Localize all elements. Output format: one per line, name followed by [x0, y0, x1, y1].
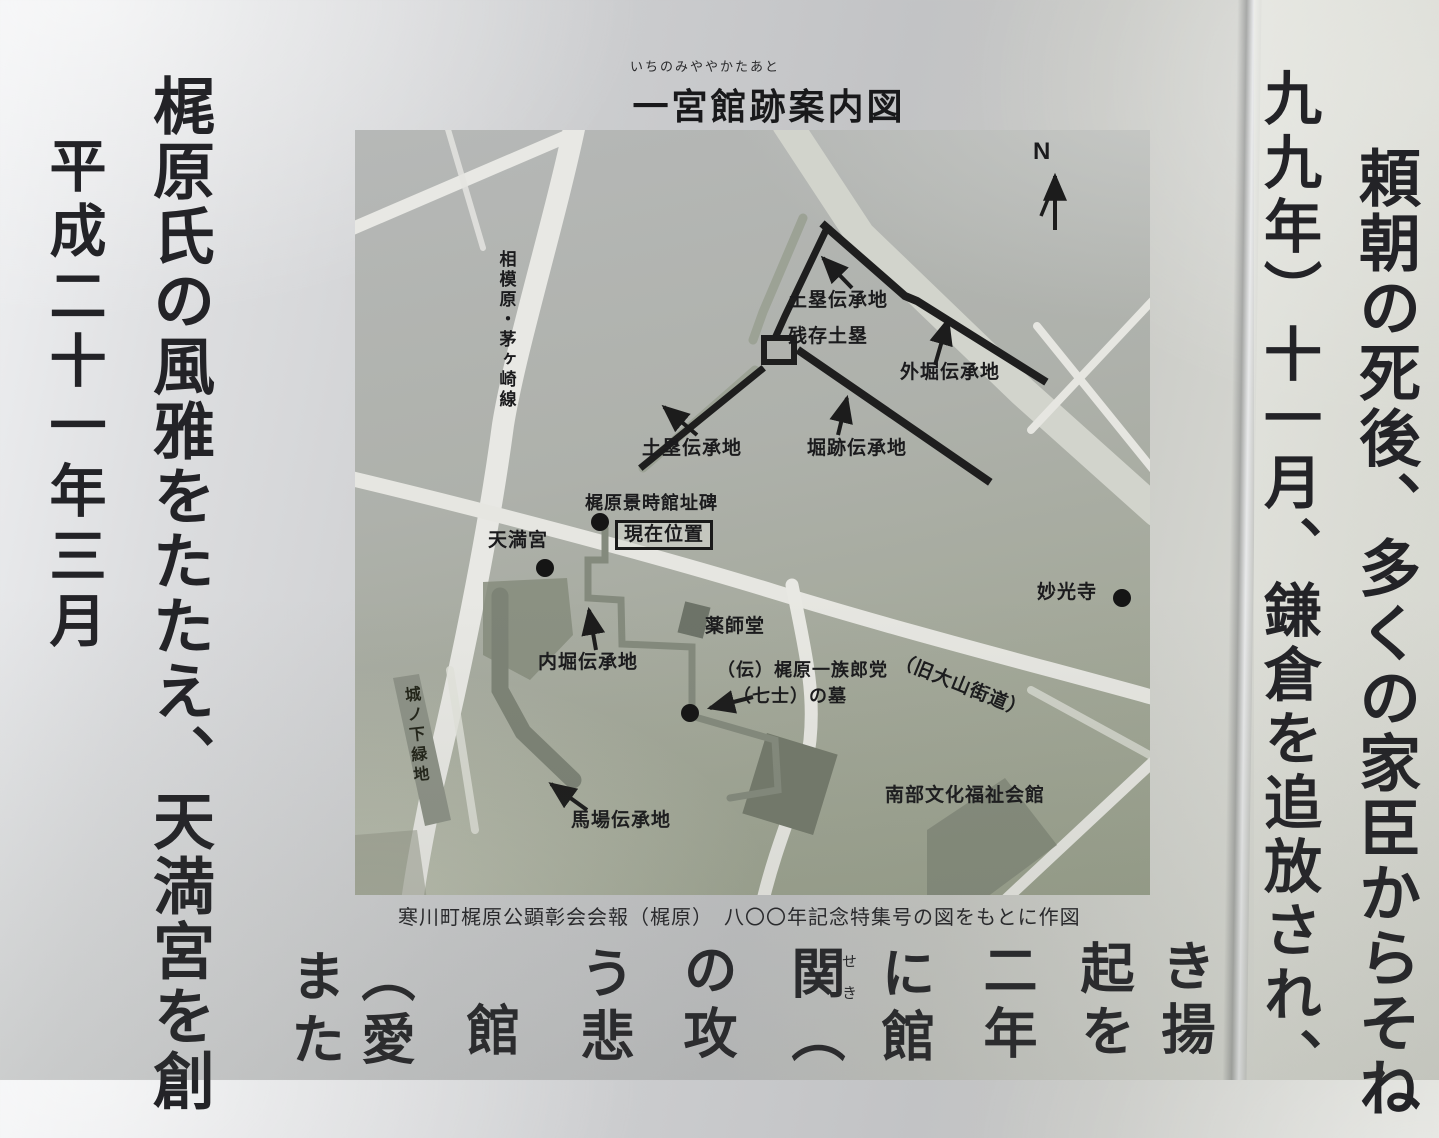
label-baba: 馬場伝承地 [571, 810, 671, 832]
label-dorui-north: 土塁伝承地 [788, 290, 888, 312]
myokoji-dot [1113, 589, 1131, 607]
left-body-column: 梶原氏の風雅をたたえ、天満宮を創 [146, 74, 208, 1084]
compass-north-label: N [1033, 138, 1050, 166]
signboard-photo: { "sign": { "title": "一宮館跡案内図", "title_f… [0, 0, 1439, 1080]
north-arrow-icon [1041, 176, 1055, 230]
bottom-fragment-3: 二年 [978, 942, 1032, 1078]
left-date-column: 平成二十一年三月 [44, 136, 101, 1086]
map-title-block: いちのみややかたあと 一宮館跡案内図 [604, 56, 934, 130]
guide-map: N 相模原・茅ヶ崎線 土塁伝承地 残存土塁 外堀伝承地 土塁伝承地 堀跡伝承地 … [355, 130, 1150, 895]
label-zanzon-dorui: 残存土塁 [788, 326, 868, 348]
label-kajiwara-monument: 梶原景時館址碑 [585, 493, 718, 514]
monument-dot [591, 513, 609, 531]
current-location-box: 現在位置 [615, 520, 713, 550]
bottom-fragment-6: の攻 [678, 942, 732, 1078]
bottom-fragment-9: （愛 [356, 948, 410, 1084]
label-haka-line2: （七士）の墓 [733, 686, 847, 707]
right-body-column-outer: 頼朝の死後、多くの家臣からそね [1352, 146, 1414, 1086]
label-dorui-west: 土塁伝承地 [642, 438, 742, 460]
bottom-fragment-8: 館 [461, 1002, 515, 1138]
label-nanbu-kaikan: 南部文化福祉会館 [885, 785, 1045, 807]
bottom-fragment-7: う悲 [575, 945, 629, 1081]
label-tenmangu: 天満宮 [488, 530, 548, 552]
label-myokoji: 妙光寺 [1037, 582, 1097, 604]
label-yakushido: 薬師堂 [705, 616, 765, 638]
fragment-seki-ruby: 関せき [783, 945, 843, 1008]
road-label-sagamihara-chigasaki: 相模原・茅ヶ崎線 [496, 250, 516, 410]
bottom-fragment-10: また [286, 948, 340, 1084]
bottom-fragment-4: に館 [876, 945, 930, 1081]
label-haka-line1: （伝）梶原一族郎党 [717, 660, 888, 681]
title-furigana: いちのみややかたあと [604, 56, 934, 75]
label-uchibori: 内堀伝承地 [538, 652, 638, 674]
grave-dot [681, 704, 699, 722]
bottom-fragment-1: き揚 [1156, 938, 1210, 1074]
right-body-column-inner: 九九年）十一月、鎌倉を追放され、 [1258, 68, 1316, 1083]
label-horiato: 堀跡伝承地 [807, 438, 907, 460]
bottom-fragment-2: 起を [1075, 940, 1129, 1076]
tenmangu-dot [536, 559, 554, 577]
page-title: 一宮館跡案内図 [604, 78, 934, 130]
bottom-fragment-5: 関せき（ [786, 945, 856, 1081]
map-geometry [355, 130, 1150, 895]
label-sotobori: 外堀伝承地 [900, 362, 1000, 384]
map-source-caption: 寒川町梶原公顕彰会会報（梶原） 八〇〇年記念特集号の図をもとに作図 [398, 901, 1081, 930]
